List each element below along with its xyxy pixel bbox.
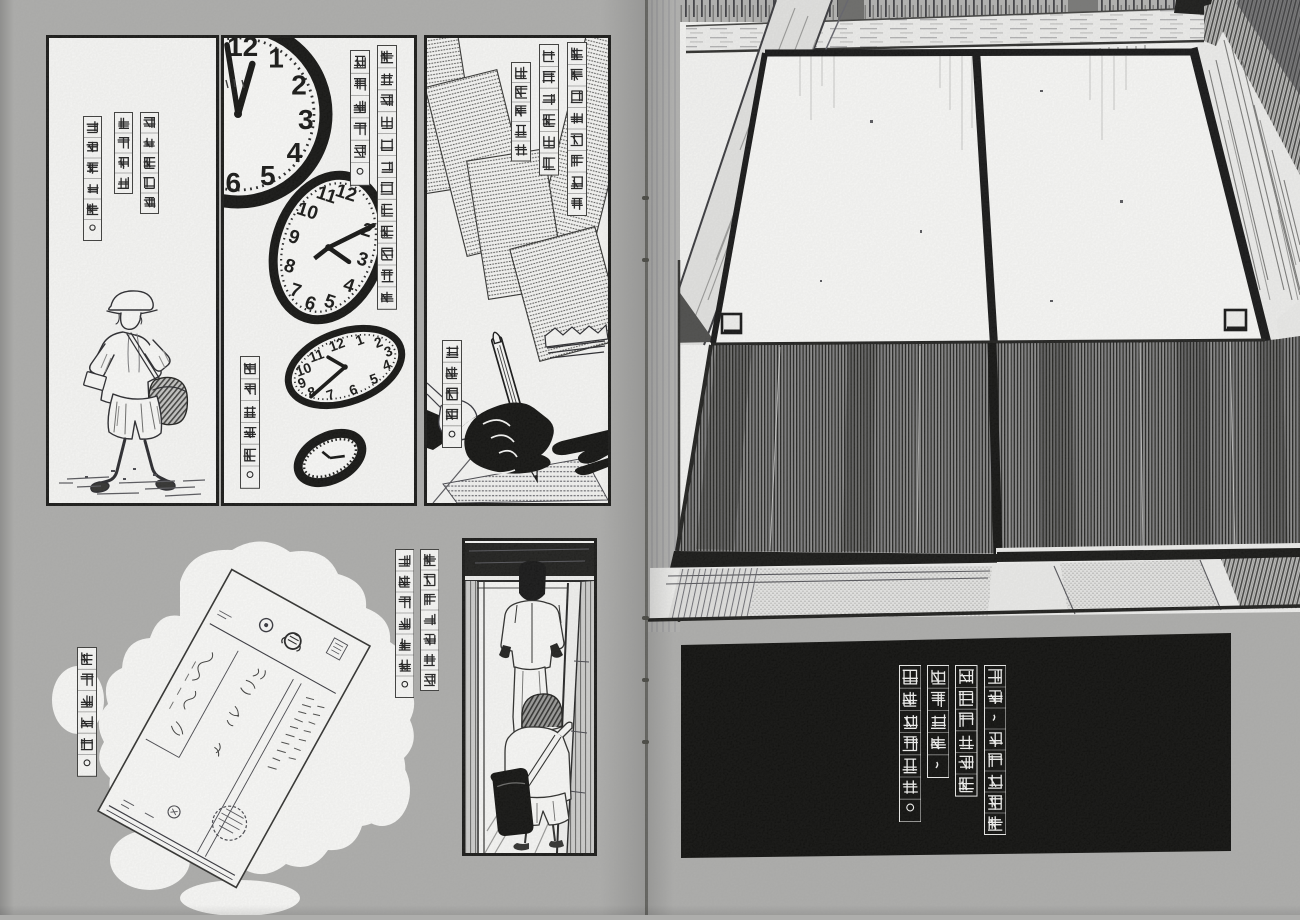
svg-text:5: 5 xyxy=(260,160,276,191)
svg-text:3: 3 xyxy=(298,104,314,135)
svg-text:2: 2 xyxy=(291,69,307,100)
svg-text:1: 1 xyxy=(268,43,284,74)
svg-text:4: 4 xyxy=(287,137,303,168)
svg-text:6: 6 xyxy=(226,167,242,198)
